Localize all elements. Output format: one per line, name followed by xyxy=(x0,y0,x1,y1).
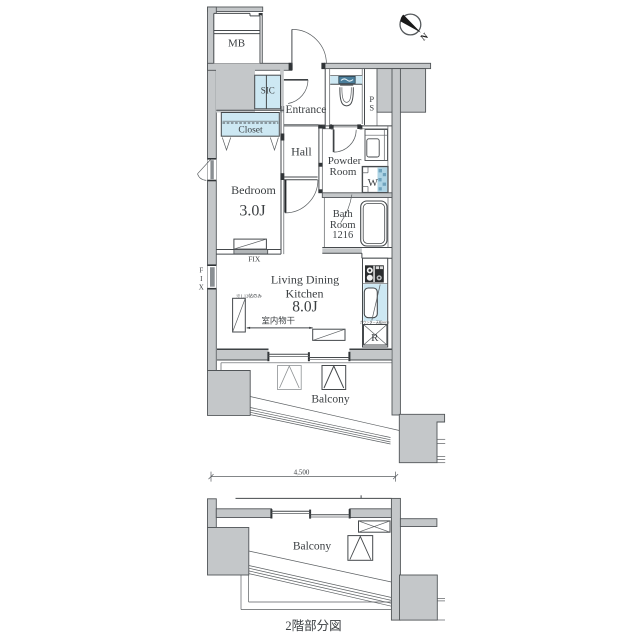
svg-text:Closet: Closet xyxy=(238,125,263,135)
svg-text:8.0J: 8.0J xyxy=(292,299,317,316)
svg-text:Bedroom: Bedroom xyxy=(231,183,276,197)
svg-text:SIC: SIC xyxy=(261,86,275,96)
svg-text:2階部分図: 2階部分図 xyxy=(285,618,341,633)
svg-text:3.0J: 3.0J xyxy=(239,203,265,220)
svg-text:1216: 1216 xyxy=(332,230,353,241)
svg-text:W: W xyxy=(368,177,379,189)
svg-text:MB: MB xyxy=(228,38,245,50)
svg-text:R: R xyxy=(371,332,379,344)
svg-text:カウンター天板H850: カウンター天板H850 xyxy=(360,320,390,325)
svg-text:S: S xyxy=(369,103,374,113)
svg-text:Bath: Bath xyxy=(333,209,354,220)
svg-text:室内物干: 室内物干 xyxy=(262,316,296,326)
svg-text:Hall: Hall xyxy=(291,145,312,159)
svg-text:4,500: 4,500 xyxy=(294,469,310,477)
svg-text:Balcony: Balcony xyxy=(293,541,332,553)
svg-text:F: F xyxy=(199,267,203,275)
svg-text:X: X xyxy=(199,284,204,292)
svg-text:Balcony: Balcony xyxy=(311,394,350,406)
svg-text:Room: Room xyxy=(330,166,357,178)
svg-text:Living Dining: Living Dining xyxy=(271,272,339,286)
svg-text:Entrance: Entrance xyxy=(285,104,326,116)
svg-text:FIX: FIX xyxy=(248,255,261,264)
